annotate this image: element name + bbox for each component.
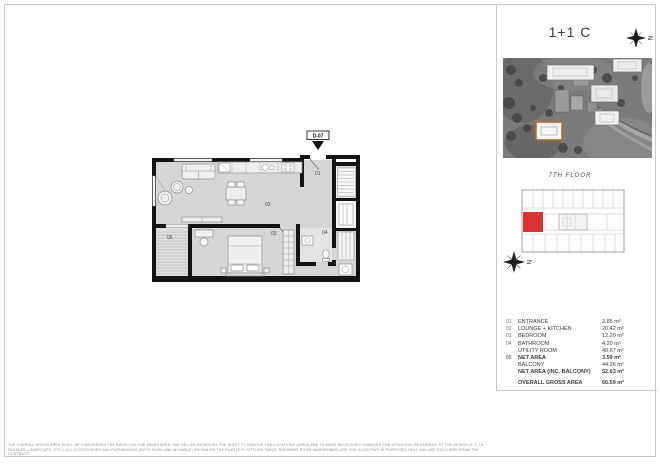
door-tag-label: D-07 (313, 134, 324, 140)
dining-table (226, 187, 246, 200)
disclaimer-line: FACADES, LANDSCAPE, ETC.). ALL ACCESSORI… (8, 448, 493, 457)
entrance-arrow-icon (312, 141, 324, 150)
area-row-label: UTILITY ROOM (518, 348, 602, 355)
unit-title: 1+1 C (497, 24, 643, 40)
area-row-value: 20.42 m² (602, 326, 652, 333)
highlighted-building (536, 122, 562, 140)
area-row-value: 4.20 m² (602, 341, 652, 348)
side-table (186, 187, 193, 194)
dining-chair (228, 182, 235, 187)
area-row-value: 40.67 m² (602, 348, 652, 355)
apartment-floor-plan: D-07 01 02 03 04 05 (132, 118, 372, 293)
desk-chair (200, 238, 208, 246)
area-row-number: 02 (506, 326, 518, 333)
kitchen-counter (218, 162, 302, 173)
area-row: UTILITY ROOM40.67 m² (506, 348, 652, 355)
area-row-label: NET AREA (INC. BALCONY) (518, 369, 602, 376)
area-row: 04BATHROOM4.20 m² (506, 341, 652, 348)
area-row: NET AREA (INC. BALCONY)52.63 m² (506, 369, 652, 376)
room-label-bathroom: 04 (322, 230, 328, 236)
pillow (247, 265, 259, 271)
keyplan-core (559, 214, 587, 230)
stove (282, 163, 294, 172)
area-row-value: 3.59 m² (602, 355, 652, 362)
north-compass-icon: N (626, 28, 654, 50)
floor-label: 7TH FLOOR (497, 173, 643, 179)
aerial-site-photo (503, 58, 652, 158)
disclaimer: THE OVERALL GROSS AREA SHALL BE CONSIDER… (8, 443, 493, 457)
area-row-number: 04 (506, 341, 518, 348)
area-table: 01ENTRANCE3.85 m²02LOUNGE + KITCHEN20.42… (506, 319, 652, 387)
area-row-label: LOUNGE + KITCHEN (518, 326, 602, 333)
area-row: 02LOUNGE + KITCHEN20.42 m² (506, 326, 652, 333)
area-row-label: BALCONY (518, 362, 602, 369)
area-row-number: 01 (506, 319, 518, 326)
headboard (226, 273, 264, 276)
toilet (323, 250, 329, 258)
area-row-value: 66.59 m² (602, 380, 652, 387)
toilet-tank (323, 259, 330, 262)
area-row-value: 52.63 m² (602, 369, 652, 376)
dining-chair (237, 200, 244, 205)
area-row-label: BATHROOM (518, 341, 602, 348)
area-row-number (506, 369, 518, 376)
area-row-number: 05 (506, 355, 518, 362)
area-row-label: ENTRANCE (518, 319, 602, 326)
area-row: 01ENTRANCE3.85 m² (506, 319, 652, 326)
room-label-balcony: 05 (167, 235, 173, 241)
nightstand (221, 268, 226, 273)
dining-chair (237, 182, 244, 187)
area-row-number (506, 380, 518, 387)
highlighted-unit (523, 212, 543, 232)
nightstand (264, 268, 269, 273)
area-row-number (506, 348, 518, 355)
dining-chair (228, 200, 235, 205)
kitchen-sink (262, 165, 268, 171)
room-label-lounge-kitchen: 02 (265, 202, 271, 208)
area-row-number (506, 362, 518, 369)
washing-machine (339, 264, 352, 275)
north-letter: N (646, 36, 652, 40)
floor-key-plan (519, 188, 627, 256)
desk (195, 230, 213, 237)
keyplan-north-compass-icon: N (503, 251, 533, 275)
area-row: BALCONY44.26 m² (506, 362, 652, 369)
area-row-number: 03 (506, 333, 518, 340)
north-letter: N (525, 260, 531, 264)
area-row-value: 12.20 m² (602, 333, 652, 340)
area-row-label: BEDROOM (518, 333, 602, 340)
area-row-label: OVERALL GROSS AREA (518, 380, 602, 387)
floor-plan-sheet: D-07 01 02 03 04 05 1+1 C N (0, 0, 660, 466)
room-label-bedroom: 03 (271, 231, 277, 237)
round-chair (158, 191, 172, 205)
area-row: 03BEDROOM12.20 m² (506, 333, 652, 340)
bathroom-sink (302, 236, 313, 245)
armchair (171, 181, 183, 193)
area-row-value: 3.85 m² (602, 319, 652, 326)
area-row: 05NET AREA3.59 m² (506, 355, 652, 362)
pillow (231, 265, 243, 271)
disclaimer-line: THE OVERALL GROSS AREA SHALL BE CONSIDER… (8, 443, 493, 448)
area-row: OVERALL GROSS AREA66.59 m² (506, 380, 652, 387)
area-row-label: NET AREA (518, 355, 602, 362)
room-label-entrance: 01 (315, 171, 321, 177)
